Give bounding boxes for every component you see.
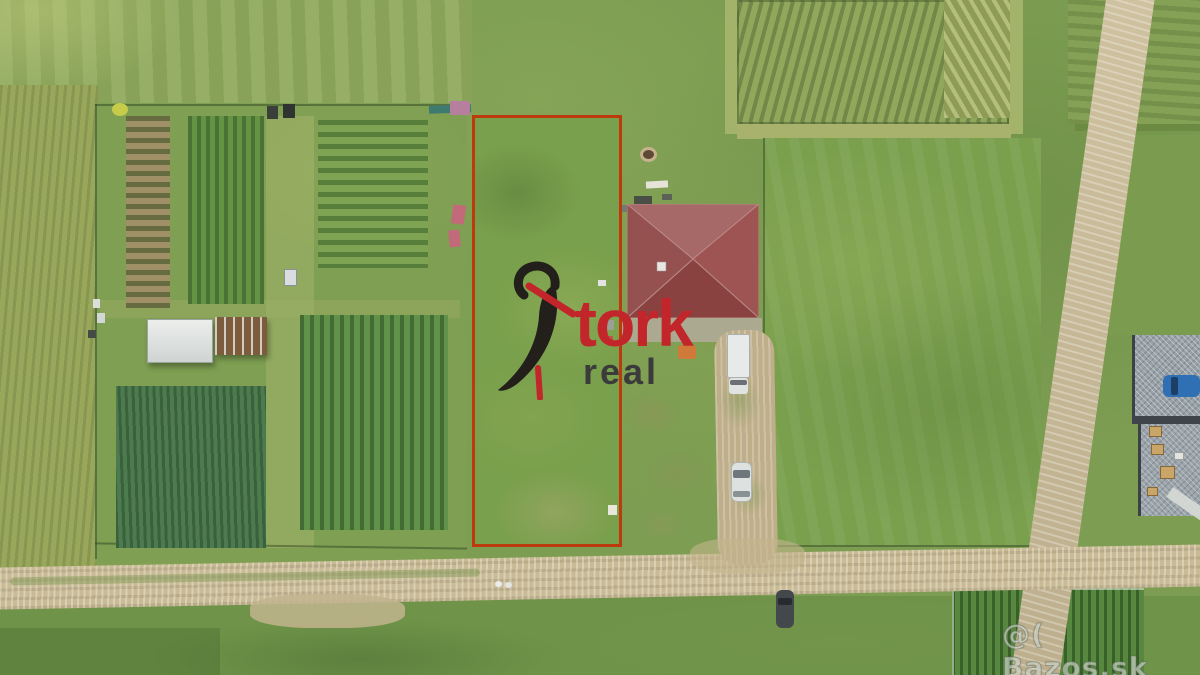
car-windshield xyxy=(733,470,750,478)
dark-panel xyxy=(634,196,652,204)
white-sack xyxy=(1174,452,1184,460)
pink-beam xyxy=(448,229,461,247)
fence-bottom-right-garden xyxy=(952,588,954,675)
garden-bed-potato-rows xyxy=(300,315,448,530)
small-white-item xyxy=(93,299,100,308)
white-plank xyxy=(646,180,668,188)
bazos-watermark: @( Bazos.sk xyxy=(1002,618,1200,675)
stork-icon xyxy=(495,260,583,400)
dark-parked-car xyxy=(776,590,794,628)
garden-bed-dense-crop xyxy=(116,386,266,548)
fence-right-field-bottom xyxy=(763,545,1041,547)
compost-bin xyxy=(267,106,278,119)
dark-grass-bottom-left xyxy=(0,628,220,675)
car-windshield xyxy=(778,598,792,605)
green-field-right xyxy=(763,138,1041,546)
rough-grass-left-edge xyxy=(0,85,98,615)
compost-bin xyxy=(283,104,295,118)
small-dark-item xyxy=(88,330,96,338)
field-access-path xyxy=(737,124,1011,139)
aerial-photo: tork real @( Bazos.sk xyxy=(0,0,1200,675)
material-pallet xyxy=(1160,466,1175,479)
material-pallet xyxy=(1147,487,1158,496)
material-pallet xyxy=(1151,444,1164,455)
garden-cart xyxy=(284,269,297,286)
garden-bed-soil-rows xyxy=(126,116,170,308)
car-rear-window xyxy=(733,491,750,497)
material-pallet xyxy=(1149,426,1162,437)
car-windshield xyxy=(1171,377,1178,395)
blue-car xyxy=(1163,375,1200,397)
stork-real-logo: tork real xyxy=(495,256,715,406)
truck-windshield xyxy=(730,380,747,385)
plot-corner-marker xyxy=(608,505,617,515)
garden-bed-upper-middle xyxy=(318,120,428,268)
pink-pad xyxy=(450,101,470,115)
bare-dirt-patch xyxy=(250,594,405,628)
white-dot-on-road xyxy=(495,581,502,587)
garden-bed-green-rows xyxy=(188,116,264,304)
fence-garden-top xyxy=(95,104,465,106)
driveway-road-junction xyxy=(690,538,805,574)
dark-foundation-strip xyxy=(1132,416,1200,424)
fire-pit-ring xyxy=(640,147,657,162)
small-white-item xyxy=(97,313,105,323)
logo-text-real: real xyxy=(583,354,659,390)
logo-text-tork: tork xyxy=(575,290,692,356)
white-box-truck xyxy=(727,334,750,378)
white-dot-on-road xyxy=(505,582,512,588)
dark-panel xyxy=(662,194,672,200)
pink-beam xyxy=(451,204,467,225)
yellow-bush xyxy=(112,103,128,116)
white-roof-shed xyxy=(147,319,213,363)
hay-rows-strip xyxy=(944,0,1010,118)
brown-shed xyxy=(215,317,267,355)
